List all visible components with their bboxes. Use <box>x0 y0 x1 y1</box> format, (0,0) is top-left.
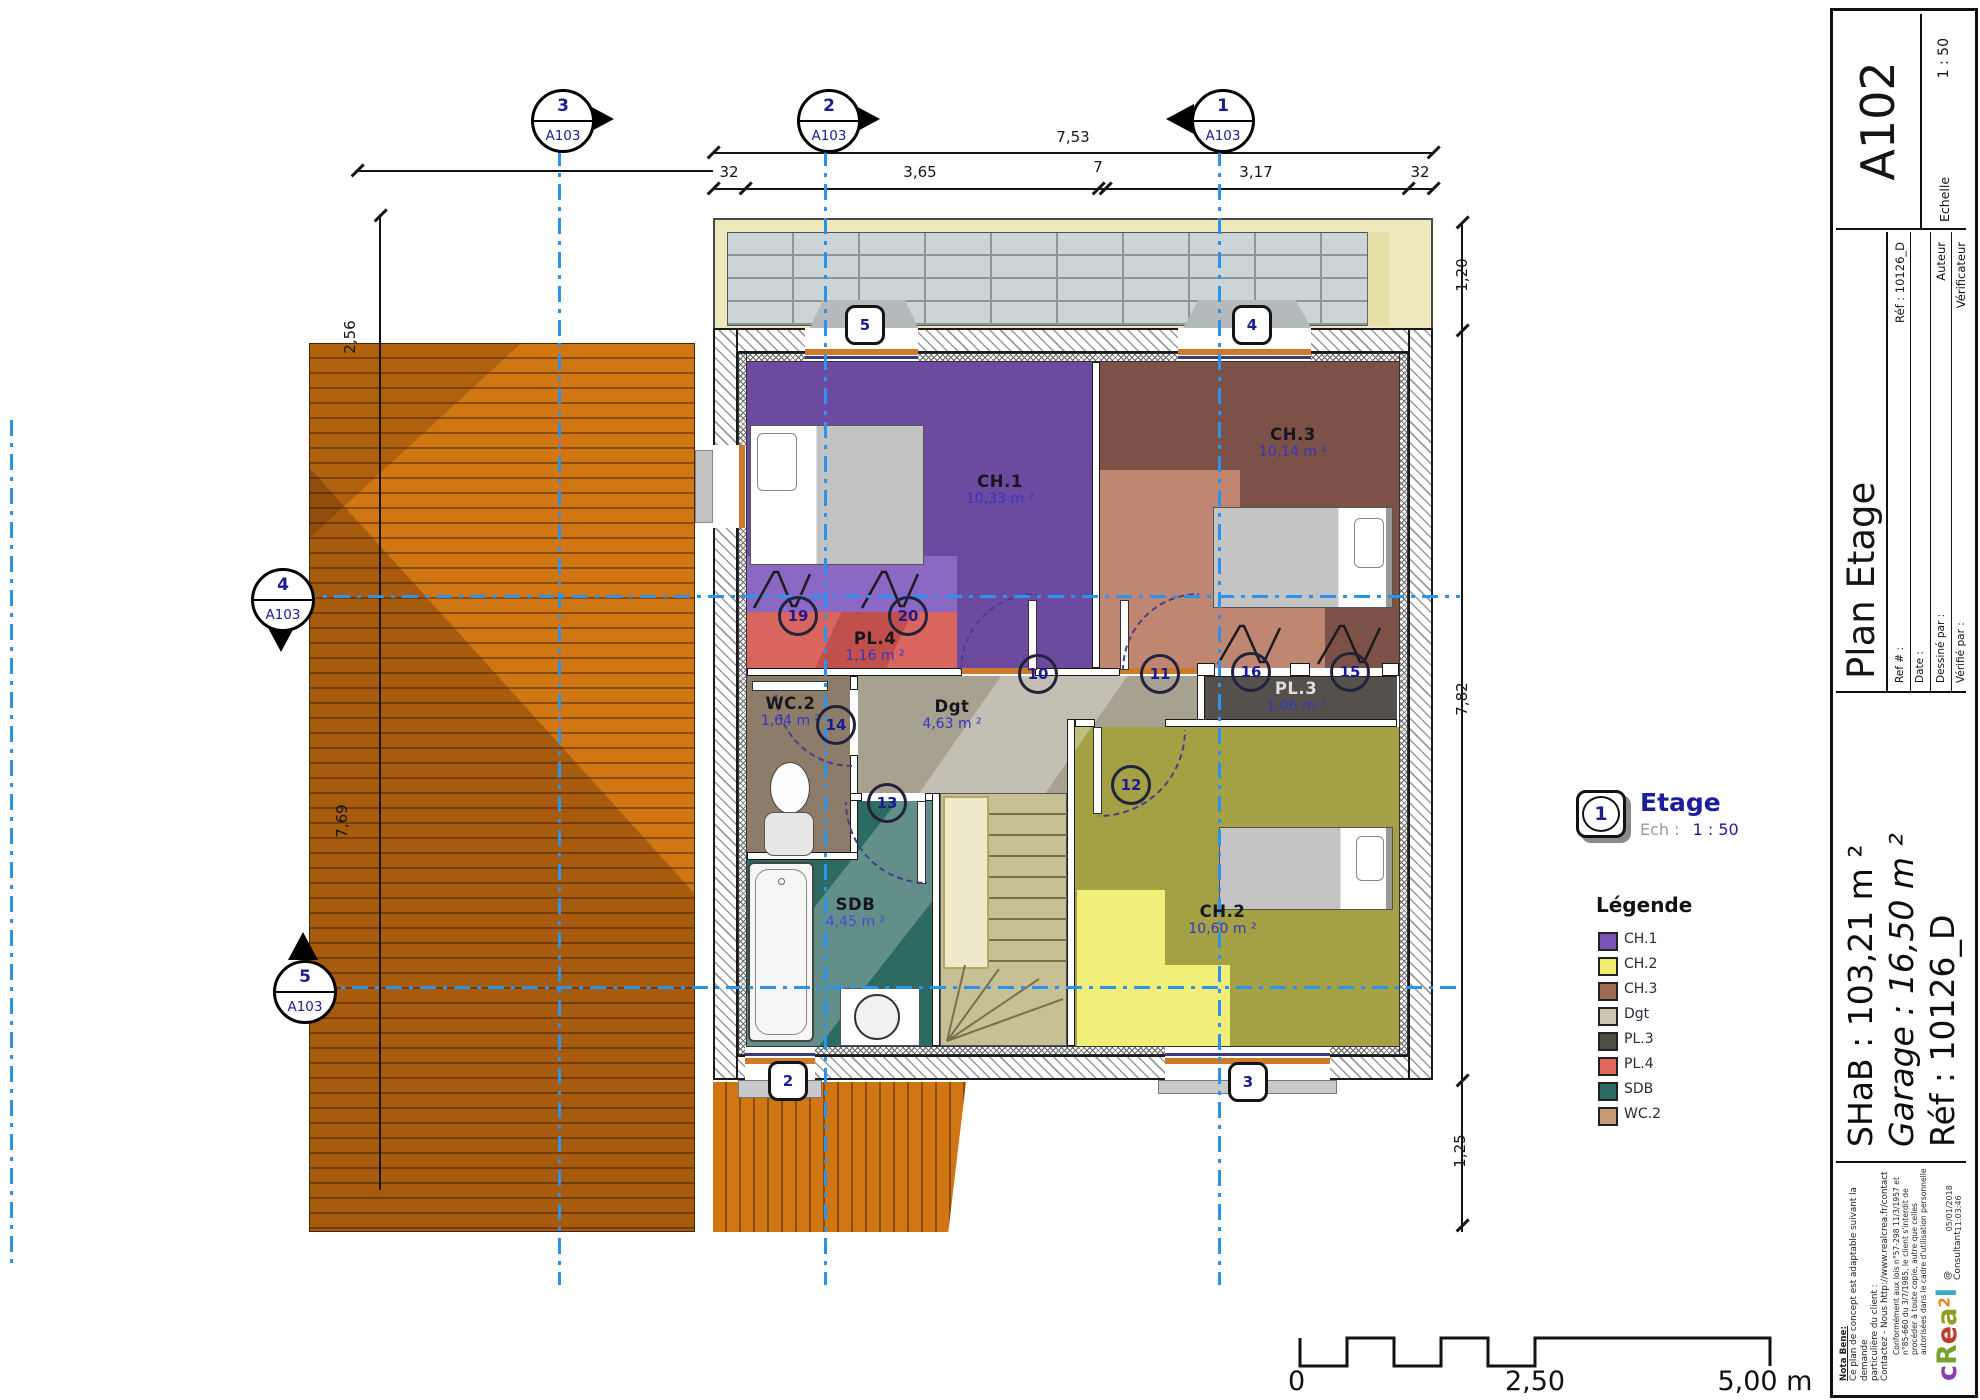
insulation-right <box>1399 353 1408 1055</box>
notes-legal: Conformément aux lois n°57-298 11/3/1957… <box>1893 1168 1928 1381</box>
scale-field-label: Echelle <box>1937 177 1952 228</box>
notes-line2: particulière du client : <box>1870 1168 1880 1381</box>
scale-field-value: 1 : 50 <box>1936 14 1952 78</box>
section-marker-number: 3 <box>534 92 592 122</box>
section-marker-sheet: A103 <box>254 601 312 629</box>
field-date: Date : <box>1910 232 1931 691</box>
door-tag-11: 11 <box>1140 654 1180 694</box>
section-marker-1: 1 A103 <box>1191 89 1255 153</box>
terrace-edge-band <box>1367 232 1389 326</box>
grid-line-4 <box>300 595 1460 598</box>
sheet-number: A102 <box>1836 14 1922 228</box>
dim-chain-365: 3,65 <box>872 163 968 181</box>
view-scale: Ech : 1 : 50 <box>1640 820 1739 839</box>
legend-label-ch2: CH.2 <box>1624 956 1657 972</box>
wall-stub-pl3-1 <box>1197 663 1215 676</box>
floor-plan-sheet: 7,53 32 3,65 7 3,17 32 3,20 2,56 7,69 1,… <box>0 0 1980 1400</box>
door-tag-20: 20 <box>888 596 928 636</box>
room-ch2-bright-l2 <box>1077 965 1230 1046</box>
dim-right-bottom: 1,25 <box>1451 1121 1469 1181</box>
wall-ch2-left <box>1067 719 1075 1046</box>
dim-chain-7: 7 <box>1085 158 1111 176</box>
roof-lower <box>713 1082 966 1232</box>
grid-line-1 <box>1218 150 1221 1285</box>
notes-line1: Ce plan de concept est adaptable suivant… <box>1849 1168 1870 1381</box>
legend-label-pl3: PL.3 <box>1624 1031 1654 1047</box>
wall-stub-pl3-2 <box>1290 663 1310 676</box>
scale-label-start: 0 <box>1288 1366 1305 1397</box>
sheet-title: Plan Etage <box>1836 232 1888 691</box>
wall-sdb-top-a <box>850 793 862 801</box>
bathtub <box>748 862 814 1042</box>
section-marker-pennant <box>288 932 318 960</box>
window3-frame <box>1165 1053 1330 1056</box>
crea-logo: cRea2l <box>1932 1288 1963 1381</box>
grid-line-5 <box>318 986 1460 989</box>
window5-glassline <box>805 356 918 359</box>
dim-chain-317: 3,17 <box>1208 163 1304 181</box>
legend-chip-sdb <box>1598 1082 1618 1101</box>
section-marker-sheet: A103 <box>1194 122 1252 150</box>
title-block-summary: SHaB : 103,21 m ² Garage : 16,50 m ² Réf… <box>1836 691 1966 1161</box>
summary-ref: Réf : 10126_D <box>1922 693 1963 1147</box>
consultant-credit: @ Consultant <box>1943 1231 1963 1280</box>
dim-right-mid: 7,82 <box>1453 669 1471 729</box>
room-label-ch3: CH.3 10,14 m ² <box>1233 425 1353 460</box>
scale-label-mid: 2,50 <box>1495 1366 1575 1397</box>
window4-glassline <box>1178 356 1311 359</box>
headboard <box>1386 508 1392 607</box>
room-label-pl4: PL.4 1,16 m ² <box>815 629 935 664</box>
legend-chip-ch2 <box>1598 957 1618 976</box>
door-tag-14: 14 <box>816 705 856 745</box>
headboard <box>1386 828 1392 909</box>
stair-void <box>943 796 989 969</box>
view-title: Etage <box>1640 788 1721 817</box>
room-label-dgt: Dgt 4,63 m ² <box>892 697 1012 732</box>
bathtub-drain <box>778 878 785 885</box>
pillow <box>1354 518 1384 568</box>
sheet-number-cell: A102 Echelle 1 : 50 <box>1836 14 1966 230</box>
section-marker-sheet: A103 <box>534 122 592 150</box>
legend-chip-dgt <box>1598 1007 1618 1026</box>
bed-ch3 <box>1213 507 1393 608</box>
legend-label-wc2: WC.2 <box>1624 1106 1661 1122</box>
window-tag-3: 3 <box>1228 1062 1268 1102</box>
wall-corridor-a <box>747 668 962 676</box>
title-block-field-rows: Ref # : Réf : 10126_D Date : Dessiné par… <box>1890 232 1971 691</box>
dim-line-top-chain <box>713 188 1433 190</box>
pillow <box>1356 836 1384 881</box>
room-label-sdb: SDB 4,45 m ² <box>798 895 913 930</box>
window-left-sill <box>695 450 713 523</box>
view-scale-value: 1 : 50 <box>1693 820 1739 839</box>
summary-garage: Garage : 16,50 m ² <box>1881 693 1922 1147</box>
section-marker-number: 2 <box>800 92 858 122</box>
wall-ch1-ch3 <box>1092 362 1100 668</box>
bed-ch2 <box>1219 827 1393 910</box>
dim-chain-32a: 32 <box>705 163 753 181</box>
section-marker-number: 4 <box>254 571 312 601</box>
door-tag-13: 13 <box>867 783 907 823</box>
section-marker-number: 1 <box>1194 92 1252 122</box>
section-marker-2: 2 A103 <box>797 89 861 153</box>
wall-stub-pl3-3 <box>1382 663 1399 676</box>
grid-line-3 <box>558 150 561 1285</box>
door-tag-19: 19 <box>778 596 818 636</box>
grid-line-edge <box>10 420 13 1270</box>
title-block-rotated: Nota Bene: Ce plan de concept est adapta… <box>1836 14 1966 1386</box>
legend-label-ch1: CH.1 <box>1624 931 1657 947</box>
window4-frame <box>1178 349 1311 355</box>
legend-chip-pl3 <box>1598 1032 1618 1051</box>
dim-line-top-left <box>357 170 713 172</box>
section-marker-pennant <box>1166 104 1194 134</box>
scale-label-end: 5,00 m <box>1700 1366 1830 1397</box>
wall-wc2-right-a <box>850 676 858 690</box>
door-tag-12: 12 <box>1111 765 1151 805</box>
bed-ch1 <box>750 425 924 565</box>
door-tag-10: 10 <box>1018 654 1058 694</box>
staircase <box>940 793 1067 1046</box>
section-marker-3: 3 A103 <box>531 89 595 153</box>
notes-header: Nota Bene: <box>1839 1168 1849 1381</box>
title-block: Nota Bene: Ce plan de concept est adapta… <box>1830 8 1978 1398</box>
toilet-bowl <box>770 762 810 814</box>
door-tag-16: 16 <box>1231 652 1271 692</box>
door-tag-15: 15 <box>1330 652 1370 692</box>
section-marker-5: 5 A103 <box>273 960 337 1024</box>
window-tag-2: 2 <box>768 1061 808 1101</box>
title-block-notes: Nota Bene: Ce plan de concept est adapta… <box>1836 1161 1966 1386</box>
dim-left-upper: 2,56 <box>341 307 359 367</box>
legend-label-dgt: Dgt <box>1624 1006 1649 1022</box>
room-label-ch2: CH.2 10,60 m ² <box>1160 902 1285 937</box>
legend-chip-ch1 <box>1598 932 1618 951</box>
wall-ch2-top-b <box>1165 719 1397 727</box>
window-left-frame <box>739 445 745 528</box>
legend-label-ch3: CH.3 <box>1624 981 1657 997</box>
section-marker-4: 4 A103 <box>251 568 315 632</box>
view-symbol-circle: 1 <box>1582 796 1620 832</box>
wall-ch2-top-a <box>1075 719 1095 727</box>
room-ch2-bright-l1 <box>1077 890 1165 965</box>
window5-frame <box>805 349 918 355</box>
window2-frame <box>745 1053 815 1056</box>
summary-shab: SHaB : 103,21 m ² <box>1840 693 1881 1147</box>
section-marker-sheet: A103 <box>800 122 858 150</box>
wall-stairs-left <box>932 793 940 1046</box>
legend-chip-pl4 <box>1598 1057 1618 1076</box>
field-ref: Ref # : Réf : 10126_D <box>1890 232 1910 691</box>
window-tag-4: 4 <box>1232 305 1272 345</box>
view-scale-label: Ech : <box>1640 820 1680 839</box>
dim-line-left <box>379 215 381 1190</box>
legend-label-pl4: PL.4 <box>1624 1056 1654 1072</box>
legend-label-sdb: SDB <box>1624 1081 1653 1097</box>
legend-chip-wc2 <box>1598 1107 1618 1126</box>
stair-treads <box>989 794 1068 969</box>
legend-chip-ch3 <box>1598 982 1618 1001</box>
dim-right-top: 1,20 <box>1453 245 1471 305</box>
washbasin <box>854 994 900 1040</box>
view-symbol: 1 <box>1576 790 1626 838</box>
field-drawn-by: Dessiné par : Auteur <box>1930 232 1951 691</box>
legend-title: Légende <box>1596 893 1692 917</box>
dim-chain-32b: 32 <box>1396 163 1444 181</box>
print-timestamp: 05/01/2018 11:03:46 <box>1945 1168 1963 1231</box>
notes-line3: Contactez - Nous http://www.realcrea.fr/… <box>1880 1168 1890 1381</box>
stair-winders <box>941 961 1068 1047</box>
field-checked-by: Vérifié par : Vérificateur <box>1951 232 1972 691</box>
room-label-ch1: CH.1 10,33 m ² <box>940 472 1060 507</box>
window-tag-5: 5 <box>845 305 885 345</box>
title-block-main: Plan Etage Ref # : Réf : 10126_D Date : … <box>1836 14 1966 691</box>
door14-leaf <box>752 681 828 691</box>
pillow <box>757 433 797 491</box>
bathtub-inner <box>755 869 807 1035</box>
toilet-cistern <box>764 812 814 856</box>
wall-right <box>1408 328 1433 1080</box>
dim-left-lower: 7,69 <box>333 791 351 851</box>
dim-overall-top: 7,53 <box>1023 128 1123 146</box>
section-marker-sheet: A103 <box>276 993 334 1021</box>
section-marker-number: 5 <box>276 963 334 993</box>
